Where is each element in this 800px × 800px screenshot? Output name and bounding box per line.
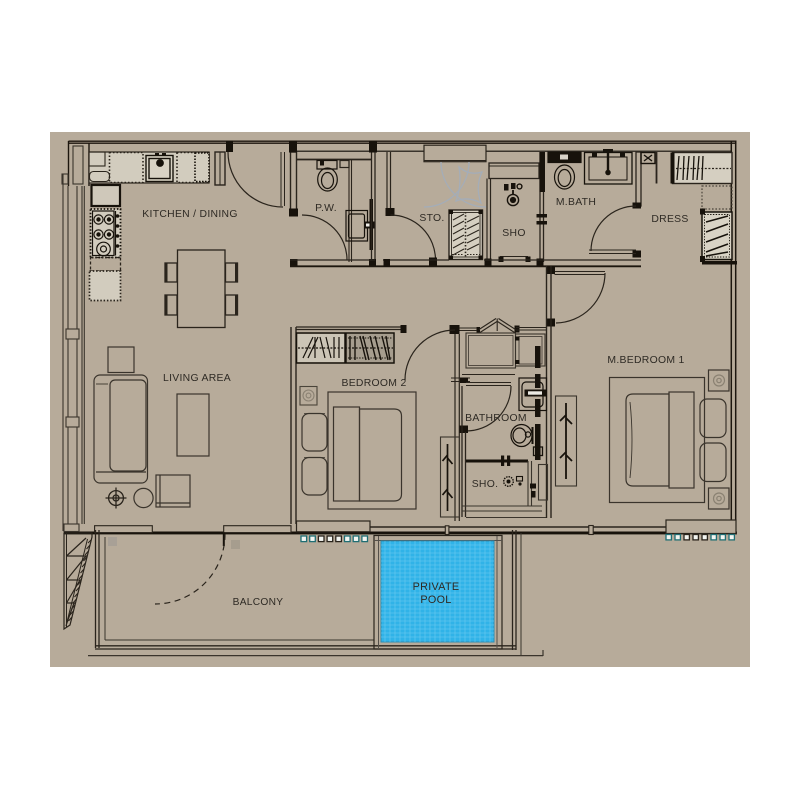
svg-text:POOL: POOL: [420, 594, 451, 606]
svg-text:LIVING AREA: LIVING AREA: [163, 373, 231, 384]
svg-text:STO.: STO.: [419, 213, 444, 224]
svg-text:BEDROOM 2: BEDROOM 2: [341, 378, 406, 389]
svg-text:M.BEDROOM 1: M.BEDROOM 1: [607, 355, 684, 366]
svg-text:PRIVATE: PRIVATE: [413, 581, 460, 593]
svg-text:KITCHEN / DINING: KITCHEN / DINING: [142, 209, 237, 220]
svg-text:BATHROOM: BATHROOM: [465, 413, 527, 424]
svg-text:SHO.: SHO.: [472, 479, 499, 490]
svg-text:DRESS: DRESS: [651, 214, 688, 225]
svg-text:BALCONY: BALCONY: [233, 597, 284, 608]
svg-text:SHO: SHO: [502, 228, 525, 239]
svg-text:P.W.: P.W.: [315, 203, 337, 214]
svg-text:M.BATH: M.BATH: [556, 197, 596, 208]
